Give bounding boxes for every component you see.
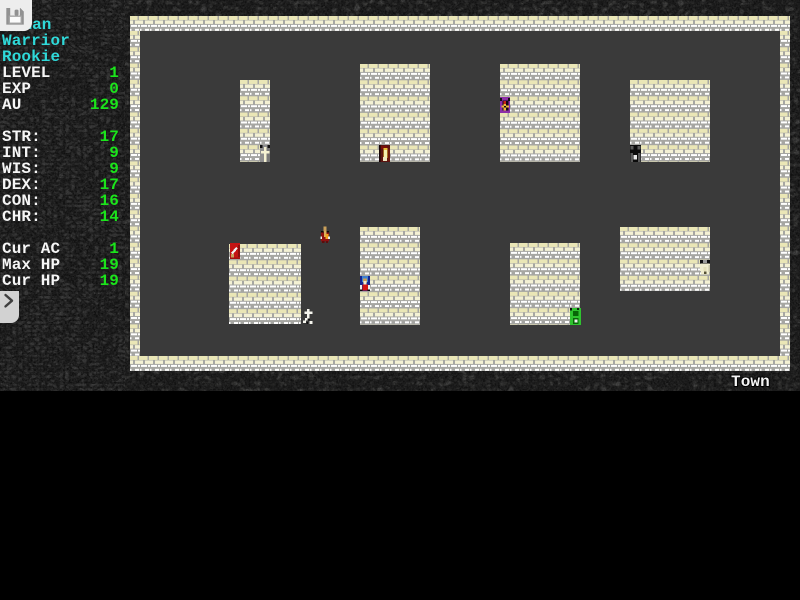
- svg-text:Town: Town: [731, 373, 770, 391]
